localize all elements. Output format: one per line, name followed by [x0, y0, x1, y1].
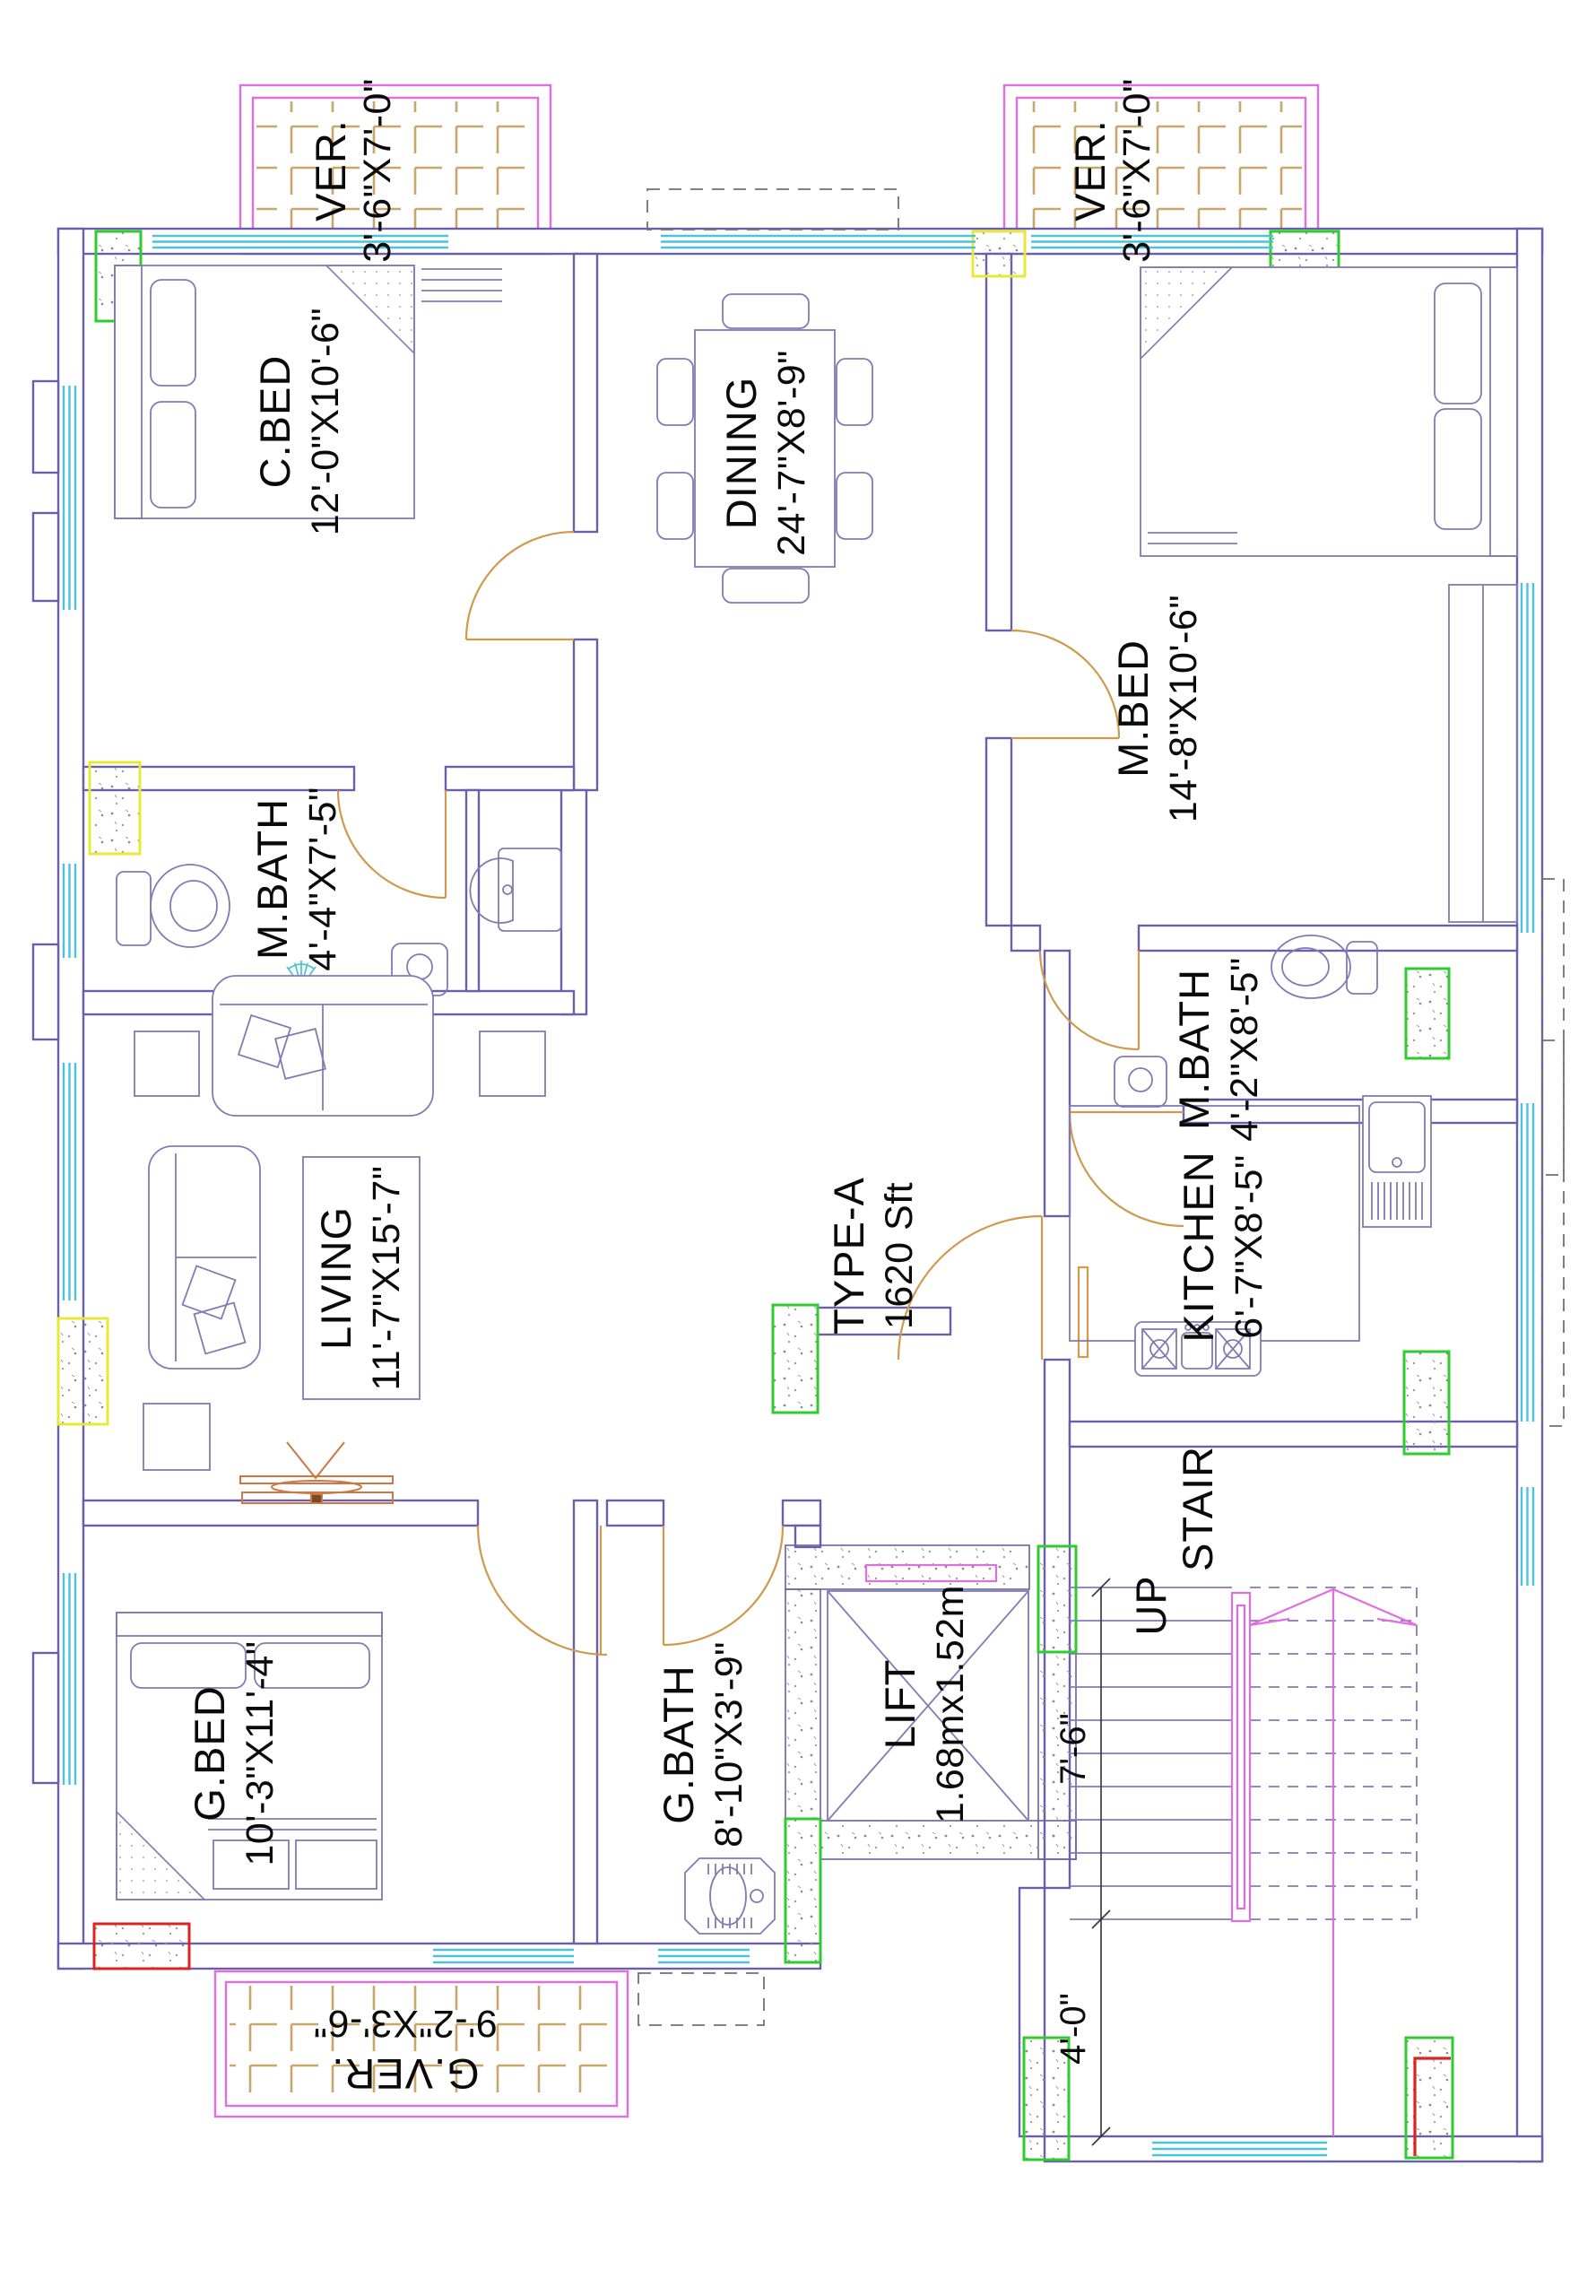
- svg-text:LIFT: LIFT: [876, 1659, 924, 1750]
- label-stair: STAIR: [1174, 1446, 1221, 1571]
- svg-text:STAIR: STAIR: [1174, 1446, 1221, 1571]
- mbath-left-door-arc: [338, 790, 446, 898]
- tv-unit: [240, 1442, 393, 1503]
- mbed-door-arc: [1011, 631, 1119, 738]
- label-kitchen: KITCHEN 6'-7"X8'-5": [1175, 1151, 1271, 1342]
- svg-text:10'-3"X11'-4": 10'-3"X11'-4": [239, 1640, 282, 1865]
- svg-text:G.BATH: G.BATH: [655, 1665, 702, 1823]
- label-dim-landing: 4'-0": [1054, 1993, 1093, 2065]
- label-dim-flight: 7'-6": [1054, 1713, 1093, 1785]
- svg-text:4'-4"X7'-5": 4'-4"X7'-5": [301, 787, 344, 970]
- svg-text:DINING: DINING: [717, 377, 765, 530]
- svg-text:3'-6"X7'-0": 3'-6"X7'-0": [1115, 78, 1158, 262]
- gbath-door-arc: [664, 1526, 783, 1645]
- svg-text:LIVING: LIVING: [312, 1206, 360, 1350]
- svg-text:M.BATH: M.BATH: [1170, 969, 1218, 1130]
- svg-text:8'-10"X3'-9": 8'-10"X3'-9": [707, 1641, 750, 1848]
- stair-rail: [1232, 1587, 1417, 2136]
- floor-plan-drawing: VER. 3'-6"X7'-0" VER. 3'-6"X7'-0" C.BED …: [0, 0, 1596, 2296]
- svg-text:G.VER.: G.VER.: [331, 2050, 479, 2098]
- cbed-door-arc: [466, 532, 574, 639]
- svg-text:G.BED: G.BED: [186, 1685, 233, 1821]
- svg-text:VER.: VER.: [1066, 119, 1114, 222]
- kitchen-door-arc: [1070, 1112, 1184, 1226]
- svg-text:4'-0": 4'-0": [1054, 1993, 1093, 2065]
- svg-text:24'-7"X8'-9": 24'-7"X8'-9": [770, 350, 813, 556]
- svg-text:4'-2"X8'-5": 4'-2"X8'-5": [1223, 957, 1266, 1141]
- label-stair-up: UP: [1127, 1575, 1175, 1635]
- stair-dimensions: [1092, 1578, 1110, 2145]
- svg-text:UP: UP: [1127, 1575, 1175, 1635]
- entry-door-leaf2: [1079, 1267, 1088, 1357]
- svg-text:VER.: VER.: [307, 119, 354, 222]
- svg-text:7'-6": 7'-6": [1054, 1713, 1093, 1785]
- svg-text:3'-6"X7'-0": 3'-6"X7'-0": [356, 78, 399, 262]
- gbath-fixture: [685, 1858, 775, 1934]
- svg-text:M.BED: M.BED: [1109, 639, 1157, 778]
- dining-table: [657, 294, 872, 603]
- svg-text:14'-8"X10'-6": 14'-8"X10'-6": [1162, 595, 1205, 822]
- floor-plan-page: VER. 3'-6"X7'-0" VER. 3'-6"X7'-0" C.BED …: [0, 0, 1596, 2296]
- svg-text:M.BATH: M.BATH: [248, 798, 296, 960]
- svg-text:C.BED: C.BED: [251, 355, 299, 489]
- stair-treads: [1070, 1587, 1417, 1919]
- svg-text:12'-0"X10'-6": 12'-0"X10'-6": [304, 308, 347, 535]
- label-mbath-left: M.BATH 4'-4"X7'-5": [248, 787, 344, 970]
- label-mbed: M.BED 14'-8"X10'-6": [1109, 595, 1205, 822]
- label-lift: LIFT 1.68mx1.52m: [876, 1585, 972, 1823]
- svg-text:1.68mx1.52m: 1.68mx1.52m: [929, 1585, 972, 1823]
- svg-text:6'-7"X8'-5": 6'-7"X8'-5": [1227, 1154, 1271, 1338]
- stair: [1070, 1578, 1417, 2145]
- label-gbath: G.BATH 8'-10"X3'-9": [655, 1641, 750, 1848]
- svg-text:11'-7"X15'-7": 11'-7"X15'-7": [365, 1165, 408, 1390]
- svg-text:9'-2"X3'-6": 9'-2"X3'-6": [313, 2002, 497, 2045]
- svg-text:TYPE-A: TYPE-A: [825, 1177, 872, 1335]
- svg-text:KITCHEN: KITCHEN: [1175, 1151, 1222, 1342]
- lift-shaft: [828, 1591, 1028, 1821]
- svg-text:1620 Sft: 1620 Sft: [878, 1182, 921, 1329]
